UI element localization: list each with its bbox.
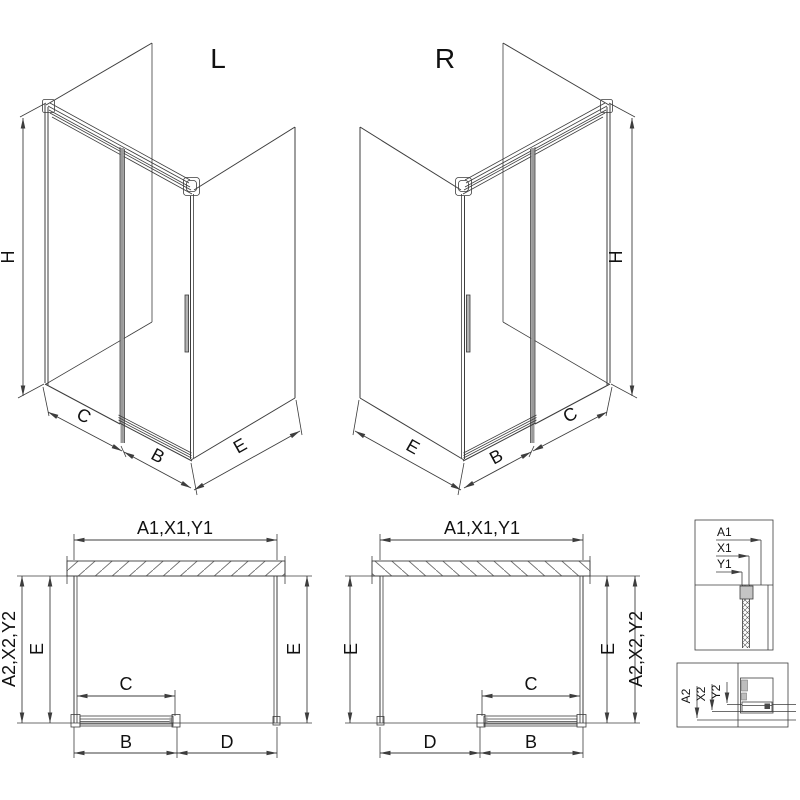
detail-bottom-label-x2: X2 [694,686,708,701]
iso-right-dim-b: B [486,445,506,468]
plan-view-left: A1,X1,Y1 A2,X2,Y2 E E C B D [0,518,312,758]
plan-right-dim-a2: A2,X2,Y2 [626,611,646,687]
plan-right-geometry [345,534,640,758]
plan-right-dim-b: B [525,732,537,752]
plan-left-dim-a2: A2,X2,Y2 [0,611,19,687]
plan-right-dim-d: D [424,732,437,752]
iso-right-title: R [435,43,455,74]
plan-view-right: A1,X1,Y1 A2,X2,Y2 E E C B D [341,518,646,758]
plan-left-dim-e-right: E [284,643,304,655]
iso-left-geometry [18,43,302,495]
iso-left-dim-c: C [73,404,94,428]
detail-bottom-label-a2: A2 [679,688,693,703]
iso-left-dim-b: B [148,444,168,467]
detail-top-label-y1: Y1 [717,557,732,571]
iso-right-dim-e: E [403,435,423,458]
shower-enclosure-technical-drawing: L H C B E R H E B C A1,X1,Y1 A2,X2,Y2 E … [0,0,800,800]
detail-top-label-x1: X1 [717,541,732,555]
drawing-sheet: L H C B E R H E B C A1,X1,Y1 A2,X2,Y2 E … [0,0,800,800]
iso-right-geometry [353,43,637,495]
iso-view-right: R H E B C [353,43,637,495]
plan-right-dim-a1: A1,X1,Y1 [444,518,520,538]
glass-section-strip [740,585,753,648]
detail-top-label-a1: A1 [717,525,732,539]
plan-right-dim-e-left: E [341,643,361,655]
plan-left-dim-c: C [120,674,133,694]
plan-left-geometry [17,534,312,758]
plan-left-dim-a1: A1,X1,Y1 [137,518,213,538]
iso-left-title: L [210,43,226,74]
iso-right-dim-c: C [560,403,581,427]
plan-right-dim-c: C [525,674,538,694]
profile-cap [740,586,753,599]
plan-left-dim-d: D [221,732,234,752]
iso-right-dim-h: H [606,251,626,264]
detail-bottom-rail: A2 X2 Y2 [677,663,796,727]
detail-top-profile: A1 X1 Y1 [695,520,773,650]
iso-view-left: L H C B E [0,43,302,495]
plan-left-dim-b: B [120,732,132,752]
detail-bottom-label-y2: Y2 [709,684,723,699]
iso-left-dim-h: H [0,251,18,264]
plan-right-dim-e-right: E [598,643,618,655]
iso-left-dim-e: E [230,434,250,457]
rail-cross-section [741,678,774,713]
plan-left-dim-e-left: E [27,643,47,655]
